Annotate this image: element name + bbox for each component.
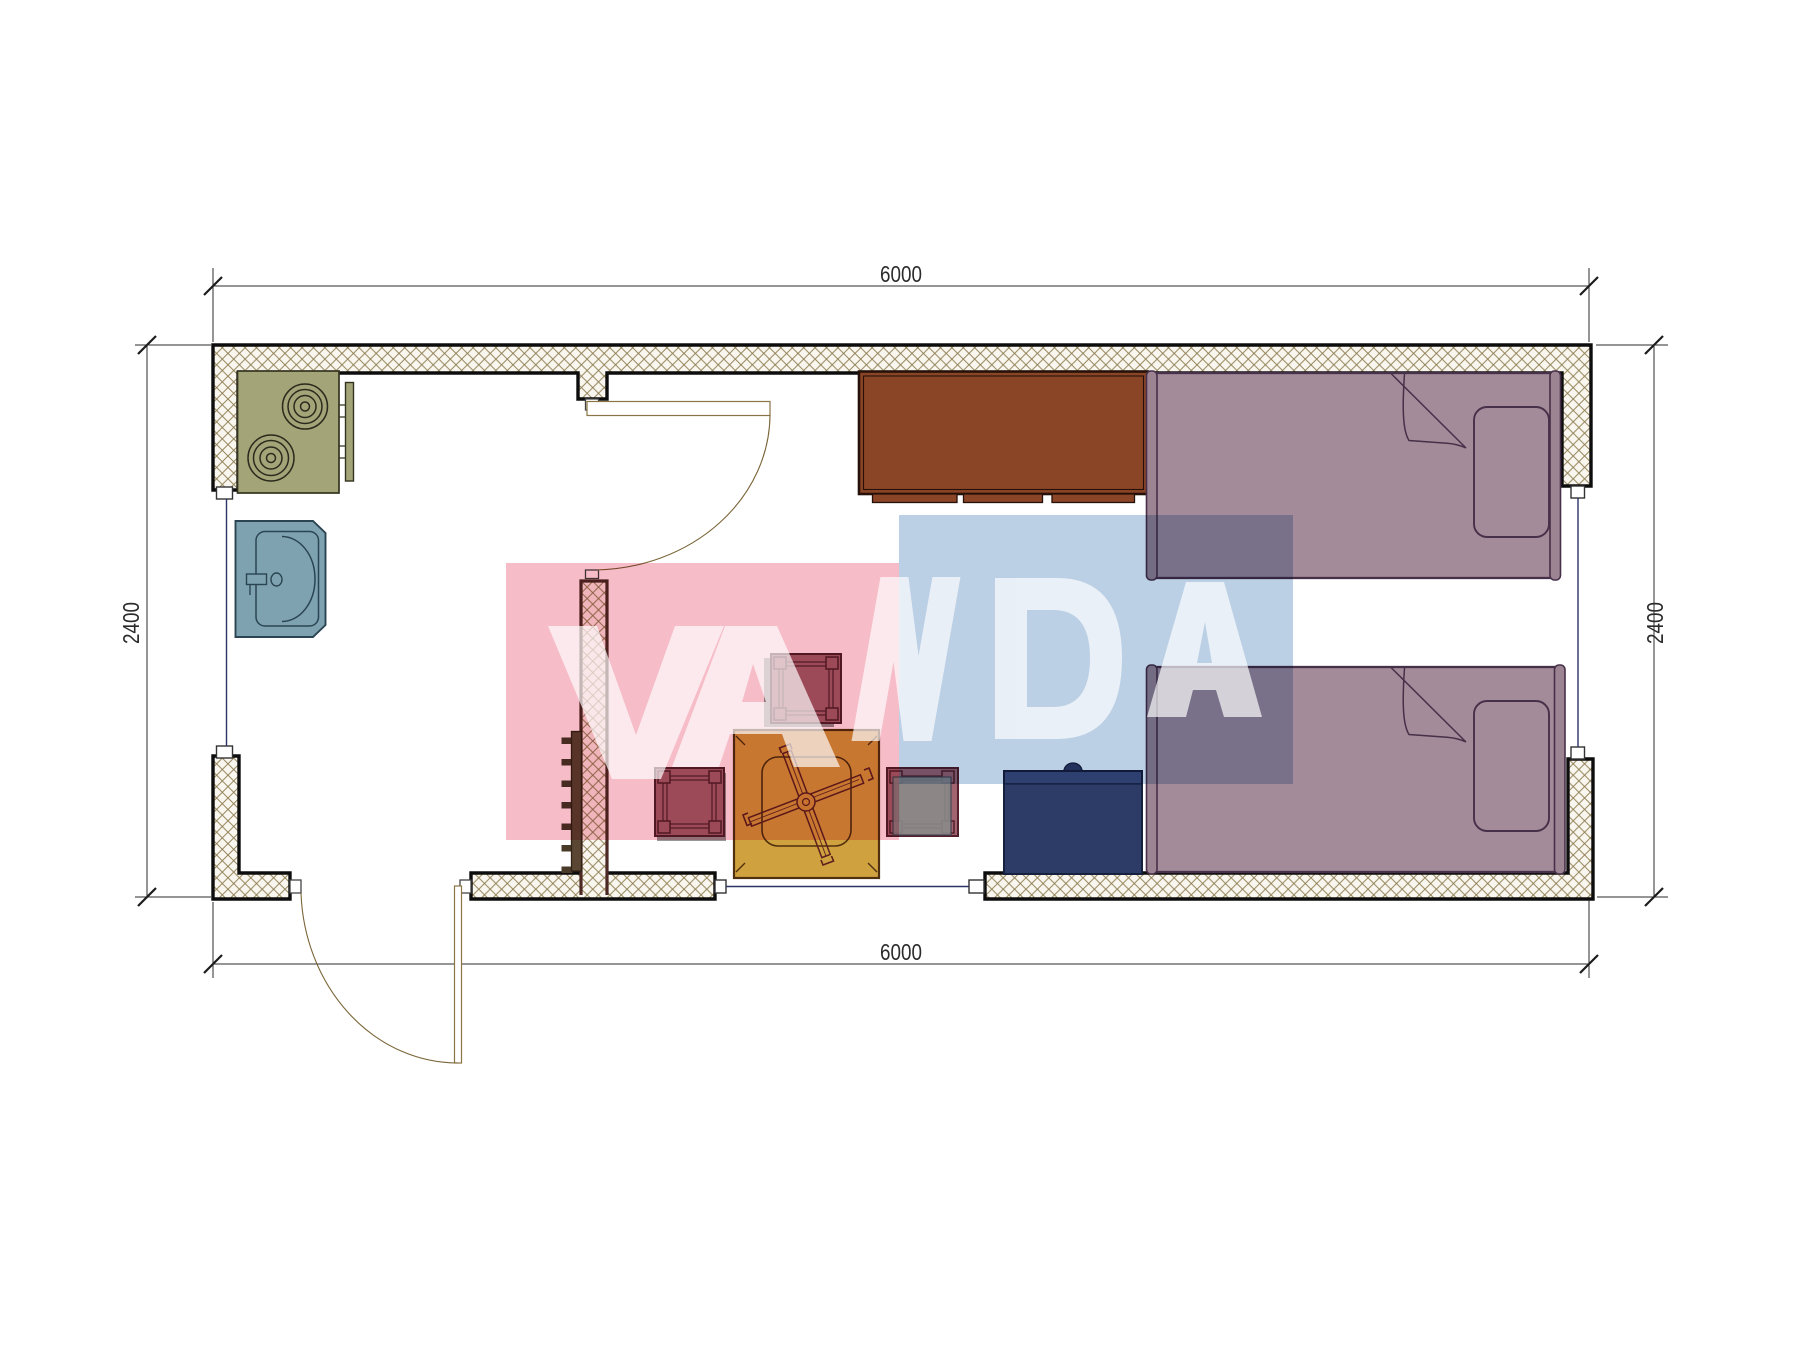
svg-text:6000: 6000 (880, 940, 922, 965)
svg-text:2400: 2400 (1643, 602, 1668, 644)
svg-text:6000: 6000 (880, 262, 922, 287)
svg-text:2400: 2400 (119, 602, 144, 644)
